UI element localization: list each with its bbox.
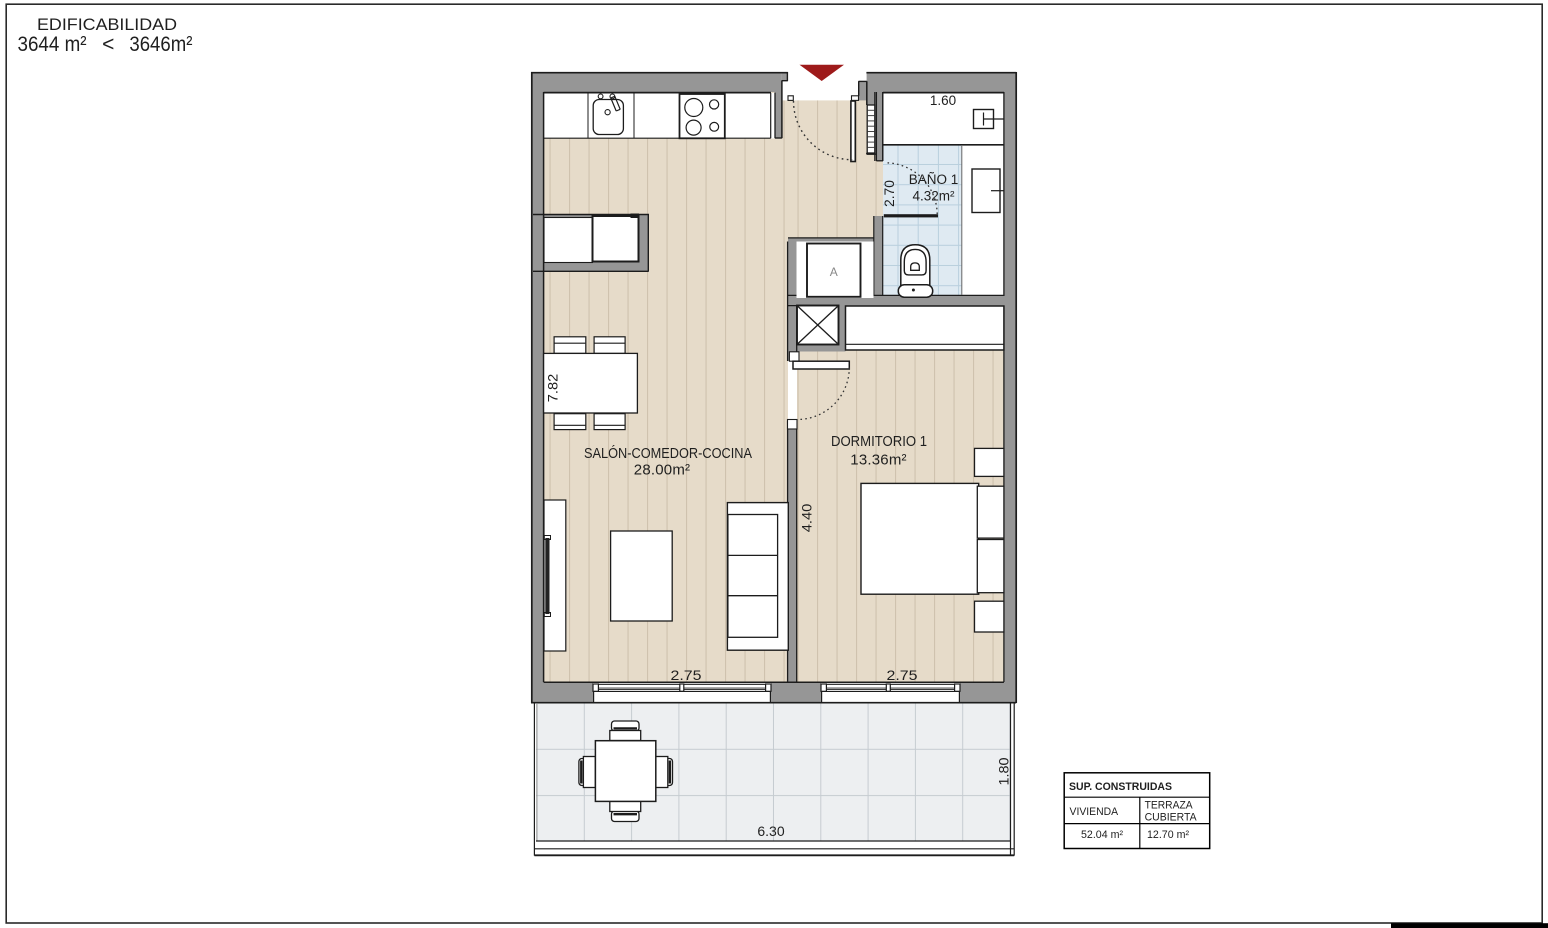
svg-text:12.70 m²: 12.70 m² xyxy=(1147,829,1189,841)
svg-text:VIVIENDA: VIVIENDA xyxy=(1070,806,1119,818)
svg-text:7.82: 7.82 xyxy=(545,374,561,403)
svg-text:3646m²: 3646m² xyxy=(129,33,192,56)
svg-text:4.40: 4.40 xyxy=(799,504,815,533)
svg-text:SUP. CONSTRUIDAS: SUP. CONSTRUIDAS xyxy=(1069,781,1172,793)
svg-text:52.04 m²: 52.04 m² xyxy=(1081,829,1123,841)
svg-text:SALÓN-COMEDOR-COCINA: SALÓN-COMEDOR-COCINA xyxy=(584,445,752,462)
svg-text:2.75: 2.75 xyxy=(671,667,702,683)
svg-text:4.32m²: 4.32m² xyxy=(912,189,955,204)
svg-text:TERRAZA: TERRAZA xyxy=(1145,800,1194,812)
svg-text:CUBIERTA: CUBIERTA xyxy=(1145,812,1198,824)
svg-text:A: A xyxy=(830,265,838,279)
svg-text:DORMITORIO 1: DORMITORIO 1 xyxy=(831,433,927,450)
svg-text:28.00m²: 28.00m² xyxy=(634,462,690,479)
svg-text:BAÑO 1: BAÑO 1 xyxy=(909,172,959,187)
svg-text:2.75: 2.75 xyxy=(887,667,918,683)
svg-text:6.30: 6.30 xyxy=(757,823,784,839)
svg-text:1.80: 1.80 xyxy=(996,757,1012,785)
svg-text:1.60: 1.60 xyxy=(930,93,956,108)
svg-text:EDIFICABILIDAD: EDIFICABILIDAD xyxy=(37,15,177,34)
svg-text:<: < xyxy=(102,33,114,56)
svg-text:13.36m²: 13.36m² xyxy=(850,452,906,469)
svg-text:3644 m²: 3644 m² xyxy=(18,33,87,56)
svg-text:2.70: 2.70 xyxy=(882,180,897,207)
